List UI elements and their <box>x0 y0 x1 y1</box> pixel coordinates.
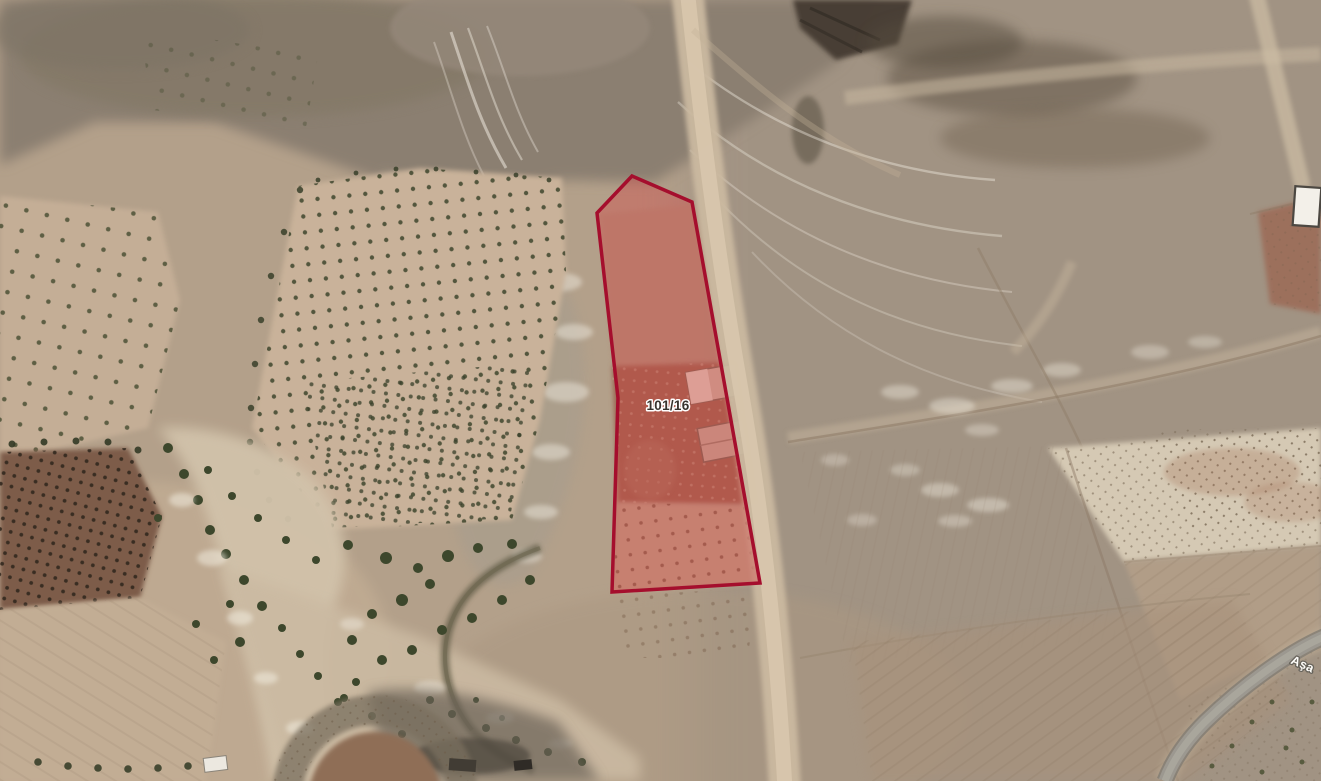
parcel-label: 101/16 <box>646 398 689 413</box>
farm-building <box>203 756 228 773</box>
farm-building <box>1293 186 1321 227</box>
farm-building <box>514 759 533 771</box>
farm-building <box>449 758 477 772</box>
satellite-map-canvas[interactable]: 101/16 Aşa <box>0 0 1321 781</box>
map-viewport[interactable]: 101/16 Aşa <box>0 0 1321 781</box>
